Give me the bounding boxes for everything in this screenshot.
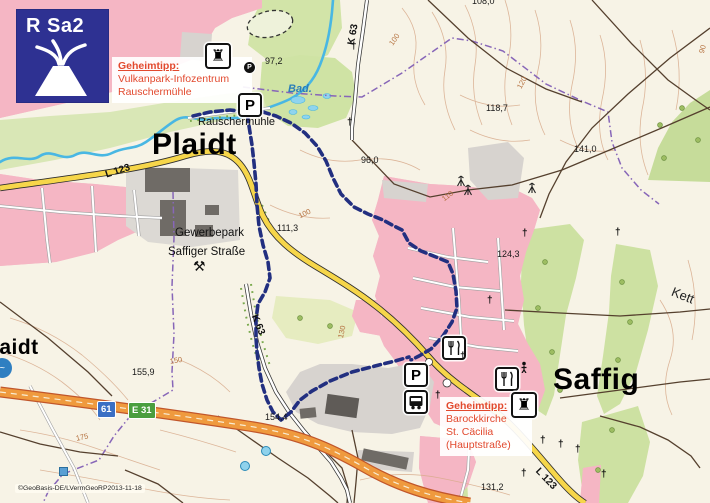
elev-label: 154,4 xyxy=(265,412,288,422)
poi-blue-square-icon xyxy=(59,467,68,476)
water-label: Bad. xyxy=(288,83,312,95)
elev-label: 155,9 xyxy=(132,367,155,377)
wayside-cross-icon: † xyxy=(435,390,441,401)
town-label: laidt xyxy=(0,336,39,360)
radio-mast-icon xyxy=(462,183,474,201)
spring-icon xyxy=(261,446,271,456)
wayside-cross-icon: † xyxy=(460,351,466,362)
spring-icon xyxy=(240,461,250,471)
volcano-icon xyxy=(17,38,108,102)
elev-label: 118,7 xyxy=(486,103,508,113)
road-badge-green: E 31 xyxy=(128,402,156,419)
road-badge-blue: 61 xyxy=(97,401,116,418)
tip-line: Rauschermühle xyxy=(118,86,246,99)
mine-hammers-icon: ⚒ xyxy=(193,258,206,275)
elev-label: 124,3 xyxy=(497,249,520,259)
town-label: Saffig xyxy=(553,363,639,397)
tip-line: St. Cäcilia xyxy=(446,426,526,439)
radio-mast-icon xyxy=(526,181,538,199)
wayside-cross-icon: † xyxy=(521,468,527,479)
wayside-cross-icon: † xyxy=(558,439,564,450)
wayside-cross-icon: † xyxy=(601,469,607,480)
wayside-cross-icon: † xyxy=(347,117,353,128)
wayside-cross-icon: † xyxy=(575,444,581,455)
town-label: Plaidt xyxy=(152,128,237,162)
trail-badge-code: R Sa2 xyxy=(26,15,84,38)
wayside-cross-icon: † xyxy=(615,227,621,238)
tip-box-vulkanpark: Geheimtipp: Vulkanpark-Infozentrum Rausc… xyxy=(112,57,252,103)
copyright-text: ©GeoBasis-DE/LVermGeoRP2013-11-18 xyxy=(15,484,145,493)
bus-stop-icon xyxy=(404,390,428,414)
elev-label: 131,2 xyxy=(481,482,504,492)
tip-line: (Hauptstraße) xyxy=(446,439,526,452)
parking-icon: P xyxy=(404,363,428,387)
statue-icon xyxy=(519,360,529,378)
place12-label: Saffiger Straße xyxy=(168,246,245,258)
elev-label: 96,0 xyxy=(361,155,379,165)
trail-badge: R Sa2 xyxy=(17,10,108,102)
place11-label: Rauschermühle xyxy=(198,116,275,128)
restaurant-icon xyxy=(495,367,519,391)
parking-dot-icon: P xyxy=(243,61,256,74)
elev-label: 97,2 xyxy=(265,56,283,66)
wayside-cross-icon: † xyxy=(351,41,357,52)
parking-icon: P xyxy=(238,93,262,117)
elev-label: 111,3 xyxy=(277,223,298,233)
map-canvas: R Sa2 Geheimtipp: Vulkanpark-Infozentrum… xyxy=(0,0,710,503)
tower-museum-icon: ♜ xyxy=(205,43,231,69)
elev-label: 141,0 xyxy=(574,144,597,154)
elev-label: 108,0 xyxy=(472,0,495,6)
place12-label: Gewerbepark xyxy=(175,227,244,239)
tip-line: Vulkanpark-Infozentrum xyxy=(118,73,246,86)
tower-museum-icon: ♜ xyxy=(511,392,537,418)
wayside-cross-icon: † xyxy=(487,295,493,306)
wayside-cross-icon: † xyxy=(540,435,546,446)
wayside-cross-icon: † xyxy=(522,228,528,239)
